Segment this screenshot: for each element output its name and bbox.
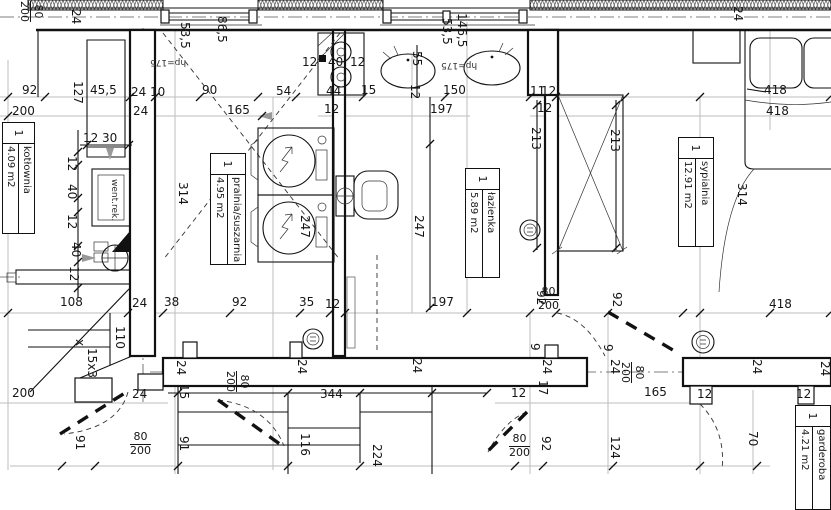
dimension-label: 12 [68,266,80,281]
room-label-pralnia: 1pralnia/suszarnia4.95 m2 [210,153,246,265]
dimension-label: 165 [227,104,250,116]
dimension-label: 24 [819,361,831,376]
dimension-label: 12 [541,85,556,97]
dimension-label: 314 [177,182,189,205]
room-label-kotlownia: 1kotłownia4.09 m2 [2,122,35,234]
dimension-label: 9 [602,344,614,352]
door-width-value: 80 [30,1,44,22]
room-label-garderoba: 1garderoba4.21 m2 [795,405,831,510]
dimension-label: 24 [732,6,744,21]
door-width-value: 80 [538,286,559,300]
door-size-label: 80200 [224,371,250,392]
dimension-label: 12 [83,132,98,144]
dimension-label: 110 [114,326,126,349]
room-number: 1 [679,138,713,159]
dimension-label: 12 [324,103,339,115]
dimension-label: 197 [431,296,454,308]
dimension-label: 90 [202,84,217,96]
dimension-label: 12 [409,84,421,99]
dimension-label: 40 [70,242,82,257]
dimension-label: 92 [232,296,247,308]
dimension-label: 12 [66,214,78,229]
dimension-label: 38 [164,296,179,308]
dimension-label: 15x3 [86,348,98,378]
dimension-label: 40 [328,56,343,68]
dimension-label: 197 [430,103,453,115]
dimension-label: 30 [102,132,117,144]
dimension-label: 53,5 [179,22,191,49]
dimension-label: 213 [530,127,542,150]
door-height-value: 200 [619,362,632,383]
room-name: łazienka [482,190,499,277]
dimension-label: 24 [132,388,147,400]
room-area: 5.89 m2 [466,190,482,277]
dimension-label: 12 [796,388,811,400]
door-width-value: 80 [509,433,530,447]
dimension-label: 146,5 [456,13,468,47]
dimension-label: 92 [611,292,623,307]
room-number: 1 [211,154,245,175]
door-width-value: 80 [130,431,151,445]
dimension-label: 92 [540,436,552,451]
dimension-label: 86,5 [216,16,228,43]
dimension-label: 35 [299,296,314,308]
door-size-label: 80200 [130,431,151,457]
dimension-label: 91 [74,435,86,450]
door-height-value: 200 [538,299,559,312]
vent-unit-label: went.rek. [109,179,118,221]
dimension-label: 24 [751,359,763,374]
dimension-label: 24 [175,360,187,375]
dimension-label: 10 [150,86,165,98]
dimension-label: 12 [66,156,78,171]
dimension-label: 127 [72,81,84,104]
floor-plan: 9245,52410905444151501112418200241651219… [0,0,831,474]
door-size-label: 80200 [509,433,530,459]
dimension-label: 314 [736,183,748,206]
dimension-label: 53,5 [441,18,453,45]
dimension-label: 24 [296,359,308,374]
dimension-label: 91 [178,436,190,451]
room-number: 1 [796,406,830,427]
dimension-label: 45,5 [90,84,117,96]
dimension-label: 247 [413,215,425,238]
dimension-label: 213 [609,129,621,152]
dimension-label: 24 [70,9,82,24]
dimension-label: 12 [697,388,712,400]
dimension-label: 54 [276,85,291,97]
room-name: pralnia/suszarnia [228,175,246,264]
dimension-label: 55 [411,51,423,66]
dimension-label: 15 [361,84,376,96]
room-label-sypialnia: 1sypialnia12.91 m2 [678,137,714,247]
dimension-label: 418 [769,298,792,310]
room-label-lazienka: 1łazienka5.89 m2 [465,168,500,278]
room-name: sypialnia [696,159,714,246]
dimension-label: 70 [747,431,759,446]
room-name: garderoba [813,427,831,509]
dimension-label: 17 [537,380,549,395]
room-name: kotłownia [18,144,34,233]
door-size-label: 80200 [538,286,559,312]
dimension-label: 24 [131,86,146,98]
door-size-label: 80200 [619,362,645,383]
dimension-label: 24 [541,359,553,374]
dimension-label: 418 [764,84,787,96]
dimension-label: 108 [60,296,83,308]
dimension-label: 12 [325,298,340,310]
dimension-label: 9 [529,343,541,351]
dimension-label: 40 [66,184,78,199]
dimension-label: 124 [609,436,621,459]
room-number: 1 [3,123,34,144]
dimension-label: 200 [12,105,35,117]
window-sill-height-label: hp=175 [441,60,477,69]
dimension-label: 150 [443,84,466,96]
room-area: 4.21 m2 [796,427,813,509]
dimension-label: 92 [22,84,37,96]
dimension-label: 15 [178,384,190,399]
dimension-label: 44 [326,85,341,97]
door-width-value: 80 [236,371,250,392]
dimension-label: 24 [411,358,423,373]
room-number: 1 [466,169,499,190]
room-area: 4.95 m2 [211,175,228,264]
dimension-label: 116 [299,433,311,456]
room-area: 12.91 m2 [679,159,696,246]
dimension-label: 12 [511,387,526,399]
dimension-label: 247 [299,215,311,238]
dimension-label: 24 [133,105,148,117]
dimension-label: 224 [371,444,383,467]
window-sill-height-label: hp=175 [150,57,186,66]
door-height-value: 200 [130,444,151,457]
door-height-value: 200 [224,371,237,392]
dimension-label: 24 [132,297,147,309]
dimension-label: 344 [320,388,343,400]
annotation-layer: 9245,52410905444151501112418200241651219… [0,0,831,474]
door-height-value: 200 [509,446,530,459]
dimension-label: 165 [644,386,667,398]
dimension-label: 200 [12,387,35,399]
door-height-value: 200 [18,1,31,22]
dimension-label: 12 [537,102,552,114]
dimension-label: 418 [766,105,789,117]
dimension-label: 12 [350,56,365,68]
door-size-label: 80200 [18,1,44,22]
door-width-value: 80 [631,362,645,383]
dimension-label: x [74,339,86,346]
room-area: 4.09 m2 [3,144,18,233]
dimension-label: 12 [302,56,317,68]
